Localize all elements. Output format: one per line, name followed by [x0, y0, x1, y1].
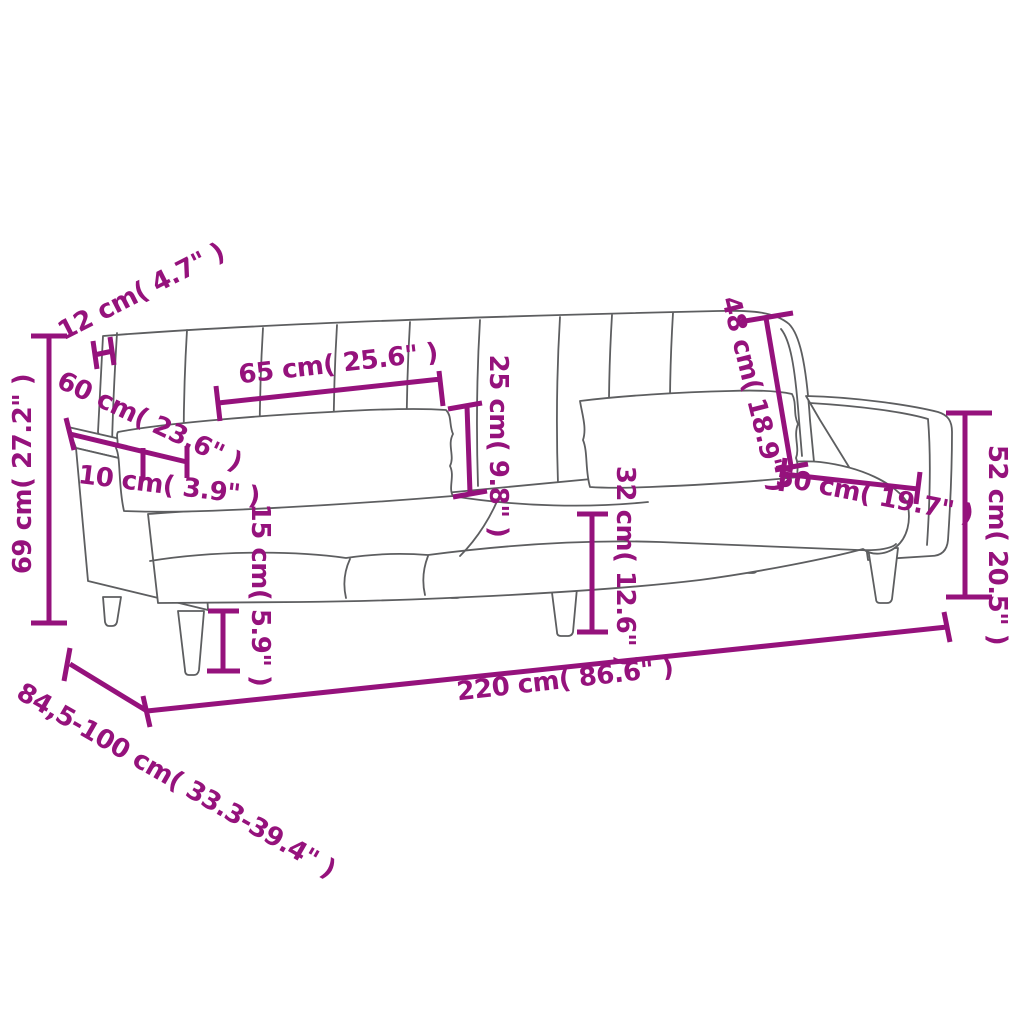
sofa-leg-front-right	[868, 548, 898, 603]
dimension-label: 32 cm( 12.6" )	[610, 466, 640, 666]
dimension-label: 52 cm( 20.5" )	[982, 445, 1012, 645]
dimension-line	[207, 611, 240, 671]
dimension-line	[64, 648, 147, 711]
dimension-diagram: 12 cm( 4.7" ) 65 cm( 25.6" ) 25 cm( 9.8"…	[0, 0, 1024, 1024]
dimension-armrest-height: 52 cm( 20.5" )	[946, 413, 1012, 645]
dimension-label: 69 cm( 27.2" )	[8, 374, 38, 574]
dimension-total-depth: 84,5-100 cm( 33.3-39.4" )	[11, 648, 340, 885]
sofa-leg-front-left	[178, 611, 204, 675]
dimension-label: 25 cm( 9.8" )	[483, 355, 513, 538]
dimension-label: 220 cm( 86.6" )	[455, 653, 675, 707]
sofa-leg-back-left	[103, 597, 121, 626]
dimension-label: 15 cm( 5.9" )	[245, 504, 275, 687]
